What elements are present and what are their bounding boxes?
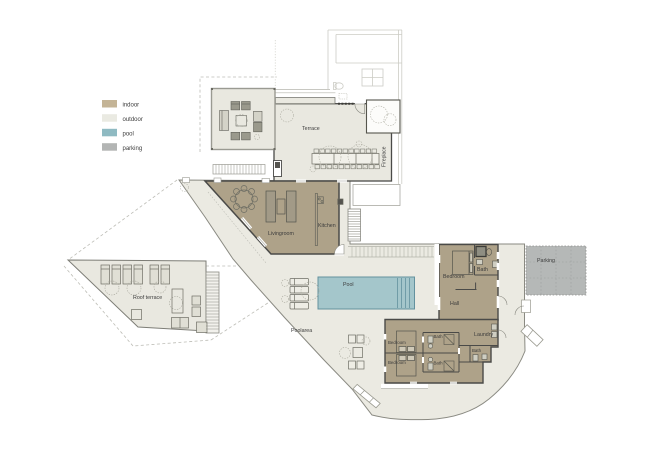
svg-text:Pool: Pool [343,282,354,288]
svg-text:pool: pool [123,132,134,138]
svg-text:Fireplace: Fireplace [382,146,388,167]
svg-text:Bath: Bath [477,267,488,273]
svg-text:Bath: Bath [434,361,444,366]
svg-text:Roof terrace: Roof terrace [133,295,162,301]
svg-text:outdoor: outdoor [123,117,143,123]
svg-text:Hall: Hall [450,301,459,307]
svg-text:Bath: Bath [472,348,482,353]
svg-text:Kitchen: Kitchen [318,223,336,229]
svg-text:indoor: indoor [123,103,140,109]
svg-text:Poolarea: Poolarea [291,328,312,334]
svg-text:Terrace: Terrace [302,126,320,132]
svg-text:Parking: Parking [537,258,555,264]
svg-text:Livingroom: Livingroom [268,231,294,237]
svg-text:Bedroom: Bedroom [388,360,406,365]
svg-text:Bedroom: Bedroom [443,274,465,280]
svg-text:Bath: Bath [434,334,444,339]
svg-text:parking: parking [123,146,143,152]
svg-text:Laundry: Laundry [474,332,493,338]
svg-text:Bedroom: Bedroom [388,340,406,345]
